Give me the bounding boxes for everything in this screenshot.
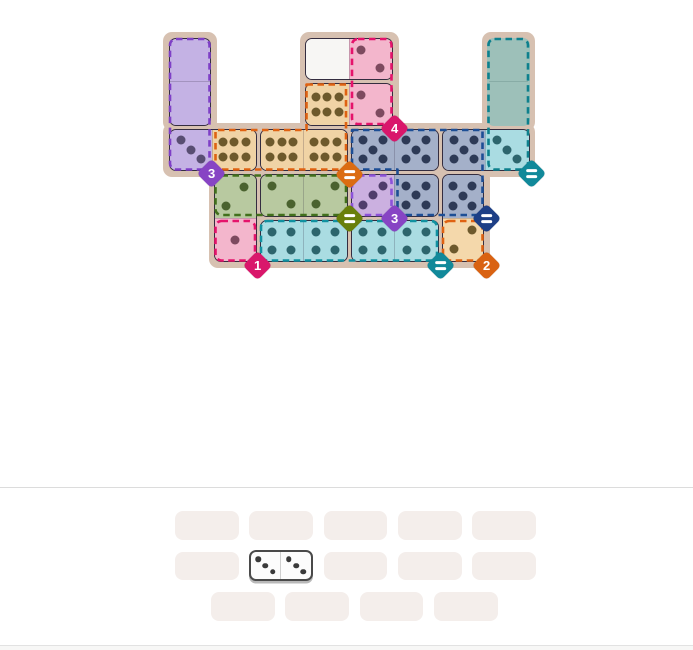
tray-slot[interactable] xyxy=(324,511,388,540)
pip xyxy=(449,245,458,254)
domino-half xyxy=(349,39,393,80)
placed-domino-0-2[interactable] xyxy=(305,38,393,81)
badge-label: 1 xyxy=(253,258,260,271)
pip xyxy=(359,245,368,254)
pip xyxy=(301,569,307,575)
pip xyxy=(255,556,261,562)
placed-domino-5-3[interactable] xyxy=(442,129,530,172)
pip xyxy=(321,138,330,147)
pip xyxy=(467,226,476,235)
domino-half xyxy=(303,130,347,171)
pip xyxy=(332,138,341,147)
pip xyxy=(330,182,339,191)
pip xyxy=(309,153,318,162)
pip xyxy=(287,227,296,236)
pip xyxy=(422,136,431,145)
pip xyxy=(422,200,431,209)
domino-half xyxy=(170,81,211,125)
pip xyxy=(268,245,277,254)
pip xyxy=(422,155,431,164)
pip xyxy=(218,138,227,147)
domino-half xyxy=(280,552,311,579)
pip xyxy=(469,136,478,145)
pip xyxy=(311,200,320,209)
pip xyxy=(493,136,502,145)
pip xyxy=(449,182,458,191)
equals-icon xyxy=(526,169,537,172)
pip xyxy=(330,227,339,236)
equals-icon xyxy=(344,219,355,222)
pip xyxy=(422,181,431,190)
pip xyxy=(449,136,458,145)
domino-tray xyxy=(0,488,693,645)
equals-icon xyxy=(344,170,355,173)
pip xyxy=(358,155,367,164)
domino-half xyxy=(215,218,256,262)
badge-label: 3 xyxy=(207,166,214,179)
badge-label xyxy=(435,261,446,270)
domino-half xyxy=(251,552,281,579)
tray-slot[interactable] xyxy=(472,552,536,581)
pip xyxy=(458,192,467,201)
pip xyxy=(268,227,277,236)
placed-domino-2-2[interactable] xyxy=(260,174,348,217)
pip xyxy=(311,92,320,101)
pip xyxy=(266,153,275,162)
equals-icon xyxy=(435,266,446,269)
pip xyxy=(376,63,385,72)
tray-slot[interactable] xyxy=(360,592,424,621)
pip xyxy=(357,45,366,54)
pip xyxy=(277,153,286,162)
domino-half xyxy=(212,130,256,171)
pip xyxy=(311,107,320,116)
pip xyxy=(286,556,292,562)
pip xyxy=(459,145,468,154)
pip xyxy=(421,245,430,254)
pip xyxy=(378,181,387,190)
pip xyxy=(468,202,477,211)
pip xyxy=(268,182,277,191)
badge-label xyxy=(344,214,355,223)
pip xyxy=(311,227,320,236)
pip xyxy=(378,227,387,236)
pip xyxy=(330,245,339,254)
pip xyxy=(378,245,387,254)
empty-board-cells[interactable] xyxy=(487,38,530,126)
pip xyxy=(323,107,332,116)
pip xyxy=(240,182,249,191)
domino-half xyxy=(303,175,347,216)
pip xyxy=(311,245,320,254)
domino-half xyxy=(261,221,304,262)
pip xyxy=(368,145,377,154)
footer-bar xyxy=(0,645,693,650)
pip xyxy=(241,138,250,147)
pip xyxy=(402,245,411,254)
placed-domino-4-4[interactable] xyxy=(260,220,348,263)
placed-domino-0-0[interactable] xyxy=(169,38,212,126)
pip xyxy=(469,155,478,164)
pip xyxy=(287,245,296,254)
pip xyxy=(334,107,343,116)
pip xyxy=(358,200,367,209)
pip xyxy=(503,145,512,154)
pip xyxy=(277,138,286,147)
pip xyxy=(309,138,318,147)
pip xyxy=(402,227,411,236)
domino-half xyxy=(306,39,349,80)
pip xyxy=(468,182,477,191)
pip xyxy=(357,91,366,100)
pip xyxy=(334,92,343,101)
pip xyxy=(230,138,239,147)
pip xyxy=(513,155,522,164)
domino-half xyxy=(261,130,304,171)
equals-icon xyxy=(344,175,355,178)
tray-slot[interactable] xyxy=(434,592,498,621)
pip xyxy=(358,136,367,145)
domino-half xyxy=(303,221,347,262)
pip xyxy=(378,136,387,145)
domino-half xyxy=(261,175,304,216)
pip xyxy=(270,569,276,575)
pip xyxy=(176,136,185,145)
pip xyxy=(222,201,231,210)
tray-slot[interactable] xyxy=(398,511,462,540)
pip xyxy=(266,138,275,147)
pip xyxy=(241,153,250,162)
pips-puzzle-page: 34312 xyxy=(0,0,693,650)
tray-slot[interactable] xyxy=(324,552,388,581)
equals-icon xyxy=(481,219,492,222)
domino-half xyxy=(443,175,484,218)
equals-icon xyxy=(526,174,537,177)
badge-label xyxy=(344,170,355,179)
badge-label: 3 xyxy=(390,211,397,224)
tray-slot[interactable] xyxy=(472,511,536,540)
pip xyxy=(449,202,458,211)
tray-slot[interactable] xyxy=(285,592,349,621)
domino-half xyxy=(443,130,486,171)
pip xyxy=(378,155,387,164)
pip xyxy=(421,227,430,236)
pip xyxy=(293,563,299,569)
badge-label xyxy=(526,169,537,178)
pip xyxy=(196,155,205,164)
tray-slot[interactable] xyxy=(249,511,313,540)
domino-half xyxy=(349,84,393,125)
placed-domino-6-2[interactable] xyxy=(305,83,393,126)
board: 34312 xyxy=(0,0,693,490)
pip xyxy=(359,227,368,236)
pip xyxy=(402,136,411,145)
domino-half xyxy=(215,175,256,218)
pip xyxy=(402,155,411,164)
domino-half xyxy=(170,39,211,82)
equals-icon xyxy=(481,214,492,217)
pip xyxy=(186,145,195,154)
badge-label: 4 xyxy=(390,121,397,134)
equals-icon xyxy=(344,214,355,217)
pip xyxy=(230,153,239,162)
pip xyxy=(287,200,296,209)
pip xyxy=(289,153,298,162)
tray-slot[interactable] xyxy=(398,552,462,581)
placed-domino-6-6[interactable] xyxy=(260,129,348,172)
pip xyxy=(332,153,341,162)
cell-separator xyxy=(489,81,528,82)
equals-icon xyxy=(435,261,446,264)
pip xyxy=(412,145,421,154)
pip xyxy=(321,153,330,162)
tray-slot[interactable] xyxy=(175,552,239,581)
pip xyxy=(218,153,227,162)
domino-half xyxy=(306,84,349,125)
pip xyxy=(412,191,421,200)
badge-label xyxy=(481,214,492,223)
pip xyxy=(376,109,385,118)
placed-domino-2-1[interactable] xyxy=(214,174,257,262)
tray-slot[interactable] xyxy=(175,511,239,540)
pip xyxy=(231,235,240,244)
pip xyxy=(449,155,458,164)
pip xyxy=(368,191,377,200)
pip xyxy=(323,92,332,101)
pip xyxy=(289,138,298,147)
tray-slot[interactable] xyxy=(211,592,275,621)
pip xyxy=(263,563,269,569)
tray-domino-3-3[interactable] xyxy=(249,550,314,581)
domino-half xyxy=(485,130,529,171)
pip xyxy=(402,181,411,190)
badge-label: 2 xyxy=(482,258,489,271)
pip xyxy=(402,200,411,209)
